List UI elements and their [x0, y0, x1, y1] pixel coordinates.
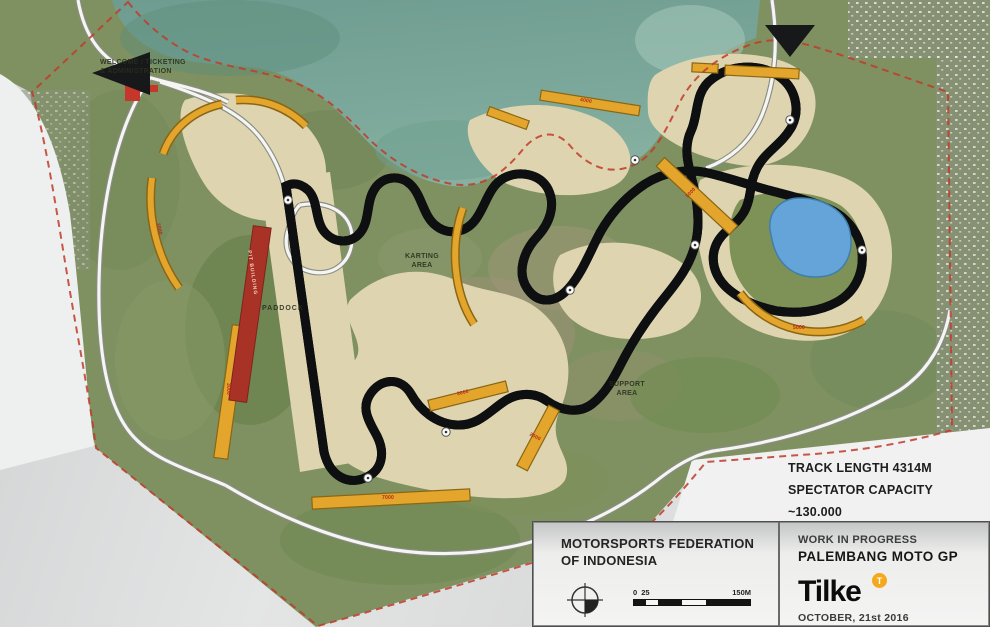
scale-bar: 0 25 150M — [633, 588, 751, 606]
track-stats: TRACK LENGTH 4314M SPECTATOR CAPACITY ~1… — [788, 458, 990, 524]
site-plan-photo: WELCOME / TICKETING & ADMINISTRATION KAR… — [0, 0, 990, 627]
title-block-right: WORK IN PROGRESS PALEMBANG MOTO GP Tilke… — [780, 522, 989, 626]
scale-mid: 25 — [641, 588, 649, 597]
grandstand-capacity: 3000 — [225, 383, 231, 395]
title-block-left: MOTORSPORTS FEDERATION OF INDONESIA 0 25… — [533, 522, 780, 626]
status-label: WORK IN PROGRESS — [798, 534, 989, 546]
paddock-label: PADDOCK — [262, 304, 304, 313]
village-area-east — [936, 55, 990, 435]
welcome-ticketing-label: WELCOME / TICKETING & ADMINISTRATION — [100, 58, 196, 77]
karting-area-label: KARTING AREA — [382, 252, 462, 271]
date-label: OCTOBER, 21st 2016 — [798, 612, 989, 624]
track-length-label: TRACK LENGTH 4314M — [788, 458, 990, 480]
tilke-logo: Tilke T — [798, 577, 989, 611]
village-area-north — [848, 0, 990, 58]
organization-name: MOTORSPORTS FEDERATION OF INDONESIA — [561, 536, 778, 570]
spectator-capacity-label: SPECTATOR CAPACITY ~130.000 — [788, 480, 990, 524]
tilke-logo-badge-icon: T — [872, 573, 887, 588]
project-title: PALEMBANG MOTO GP — [798, 549, 989, 564]
compass-icon — [565, 580, 609, 620]
support-area-label: SUPPORT AREA — [592, 380, 662, 399]
scale-max: 150M — [732, 588, 751, 597]
grandstand-capacity: 5000 — [793, 325, 805, 331]
title-block: MOTORSPORTS FEDERATION OF INDONESIA 0 25… — [532, 521, 990, 627]
grandstand-capacity: 7000 — [382, 495, 394, 501]
tilke-logo-text: Tilke — [798, 575, 861, 608]
scale-bar-graphic — [633, 599, 751, 606]
scale-zero: 0 — [633, 588, 637, 597]
